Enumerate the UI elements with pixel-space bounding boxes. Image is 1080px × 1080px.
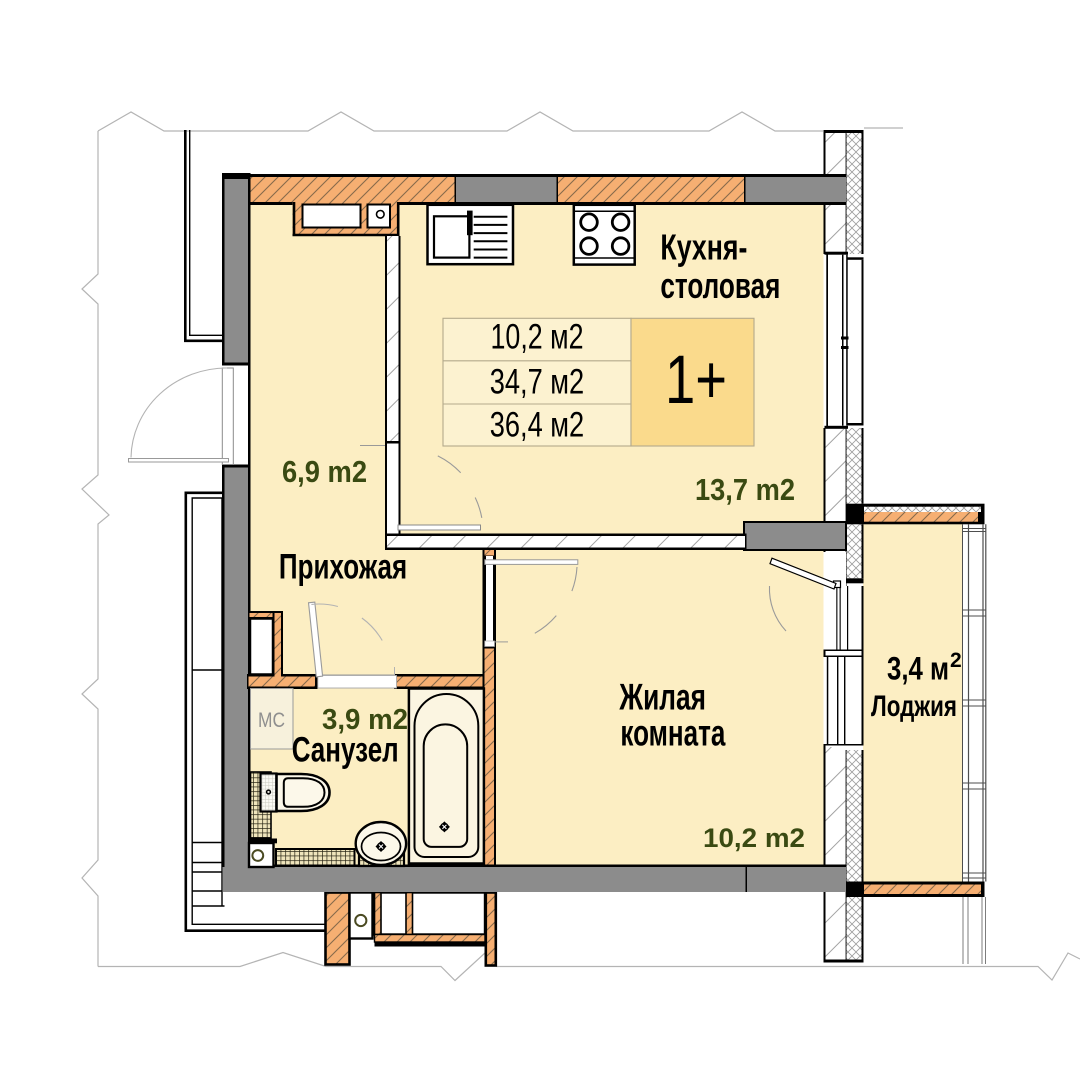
svg-text:6,9 m2: 6,9 m2	[282, 454, 367, 489]
svg-text:Прихожая: Прихожая	[279, 548, 407, 587]
svg-text:13,7 m2: 13,7 m2	[695, 472, 795, 507]
svg-text:36,4 м2: 36,4 м2	[490, 406, 585, 445]
svg-text:комната: комната	[620, 712, 725, 753]
svg-text:3,9 m2: 3,9 m2	[322, 704, 408, 736]
svg-text:столовая: столовая	[660, 265, 780, 306]
svg-text:Санузел: Санузел	[292, 731, 399, 770]
svg-text:10,2 m2: 10,2 m2	[703, 823, 805, 853]
svg-text:10,2 м2: 10,2 м2	[491, 318, 584, 357]
svg-text:МС: МС	[258, 709, 285, 732]
svg-text:2: 2	[950, 649, 962, 672]
svg-text:Лоджия: Лоджия	[871, 690, 957, 723]
svg-text:3,4 м: 3,4 м	[887, 651, 949, 687]
svg-text:34,7 м2: 34,7 м2	[490, 362, 585, 401]
svg-text:Кухня-: Кухня-	[660, 227, 747, 268]
svg-text:1+: 1+	[665, 341, 727, 418]
